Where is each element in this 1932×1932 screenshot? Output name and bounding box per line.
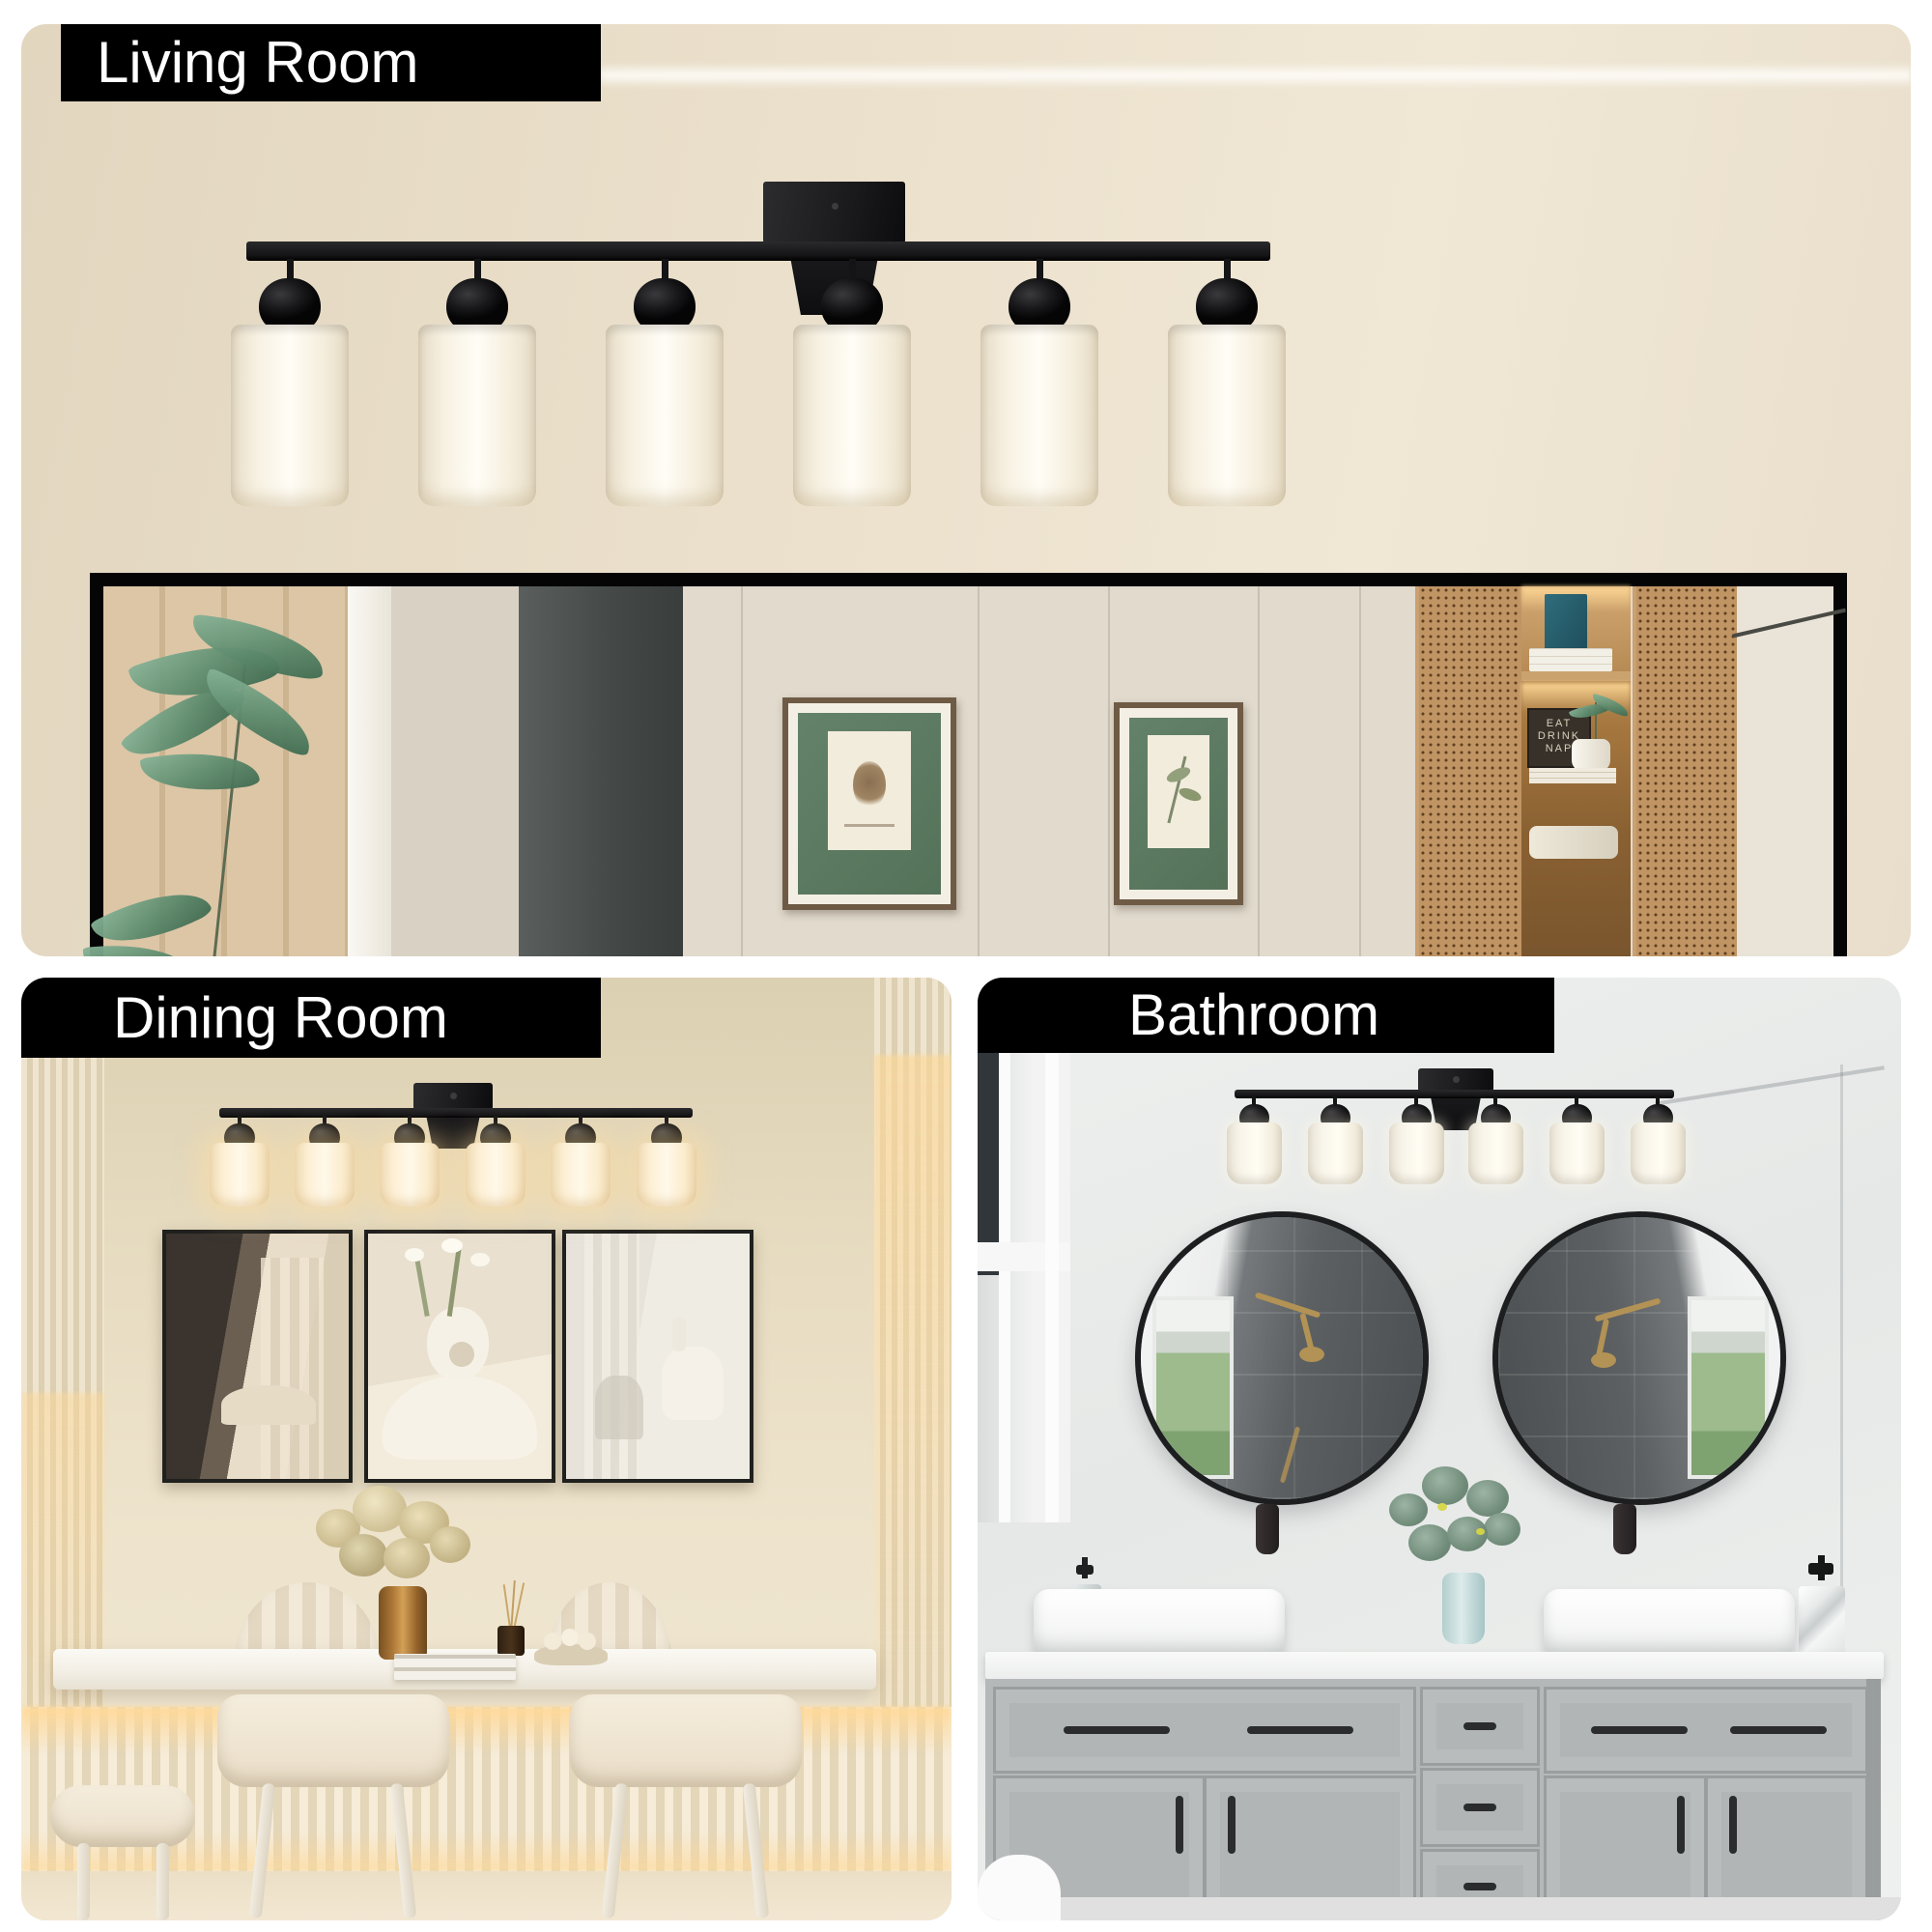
bathroom-photo: Bathroom (978, 978, 1901, 1920)
wall-faucet-left (1256, 1504, 1279, 1554)
white-vase (1572, 739, 1610, 772)
ceiling-line (1655, 1065, 1885, 1105)
lighted-shelf-niche: EAT DRINK NAP (1521, 586, 1631, 956)
vanity-countertop (985, 1652, 1884, 1679)
round-mirror-right (1492, 1211, 1786, 1505)
hall-wall (391, 586, 519, 956)
palm-plant (103, 606, 355, 956)
soap-dispenser-right (1795, 1555, 1849, 1662)
dried-flower-bouquet (306, 1480, 480, 1596)
lamp-stem (1224, 259, 1231, 280)
toilet-edge (978, 1855, 1061, 1920)
glass-shade (551, 1143, 611, 1207)
book-stack (394, 1654, 516, 1680)
fixture-bar (1235, 1090, 1674, 1098)
bathroom-floor (978, 1897, 1901, 1920)
lower-books (1529, 768, 1616, 783)
glass-shade (380, 1143, 440, 1207)
framed-print-botanical (1114, 702, 1243, 905)
dining-chair-front-left (188, 1694, 478, 1920)
glass-shade (1308, 1122, 1363, 1184)
cabinet-side-panel (1866, 1679, 1881, 1920)
glass-shade (1631, 1122, 1686, 1184)
glass-shade (606, 325, 724, 506)
vessel-sink-left (1034, 1589, 1285, 1657)
lamp-stem (662, 259, 668, 280)
mounting-plate (763, 182, 905, 243)
lamp-stem (849, 259, 856, 280)
bathroom-label: Bathroom (978, 978, 1554, 1053)
wall-art-1 (162, 1230, 353, 1483)
lamp-stem (474, 259, 481, 280)
fixture-bar (219, 1108, 693, 1118)
white-book-stack (1529, 648, 1612, 671)
glass-shade (1168, 325, 1286, 506)
living-room-inset-photo: EAT DRINK NAP (90, 573, 1847, 956)
glass-shade (1468, 1122, 1523, 1184)
glass-shade (1227, 1122, 1282, 1184)
dining-room-label-text: Dining Room (113, 985, 448, 1050)
glass-shade (210, 1143, 270, 1207)
vanity-cabinet (985, 1679, 1881, 1920)
scalloped-dish (534, 1644, 608, 1665)
teal-book (1545, 594, 1587, 650)
glass-vase (1442, 1573, 1485, 1644)
dining-room-photo: Dining Room (21, 978, 952, 1920)
vessel-sink-right (1544, 1589, 1795, 1657)
glass-shade (466, 1143, 526, 1207)
lamp-stem (287, 259, 294, 280)
living-room-photo: EAT DRINK NAP (21, 24, 1911, 956)
cabinet-drawer (1544, 1687, 1868, 1774)
shower-door-frame (978, 1053, 1070, 1522)
glass-shade (295, 1143, 355, 1207)
framed-print-teapot (782, 697, 956, 910)
wall-art-3 (562, 1230, 753, 1483)
reed-diffuser (493, 1584, 531, 1656)
glass-shade (1549, 1122, 1605, 1184)
glass-shade (793, 325, 911, 506)
glass-shade (418, 325, 536, 506)
cane-cabinet: EAT DRINK NAP (1415, 586, 1737, 956)
cabinet-small-drawer (1420, 1768, 1540, 1847)
glass-shade (980, 325, 1098, 506)
glass-shade (637, 1143, 696, 1207)
right-wall (1737, 586, 1833, 956)
amber-glass-vase (379, 1586, 427, 1660)
lamp-stem (1037, 259, 1043, 280)
cabinet-small-drawer (1420, 1687, 1540, 1766)
bathroom-label-text: Bathroom (1128, 982, 1379, 1047)
dining-chair-front-right (541, 1694, 831, 1920)
living-room-label-text: Living Room (97, 30, 419, 95)
ceiling-cove-light (601, 63, 1911, 88)
product-lifestyle-collage: EAT DRINK NAP (0, 0, 1932, 1932)
cane-door-left (1415, 586, 1527, 956)
dining-room-label: Dining Room (21, 978, 601, 1058)
cabinet-drawer (993, 1687, 1416, 1774)
dark-pillar (519, 586, 683, 956)
screw (450, 1093, 457, 1099)
shelf-board (1521, 671, 1631, 681)
glass-shade (231, 325, 349, 506)
living-room-label: Living Room (61, 24, 601, 101)
stool (50, 1785, 205, 1920)
wall-faucet-right (1613, 1504, 1636, 1554)
cane-door-right (1633, 586, 1745, 956)
screw (832, 203, 838, 210)
lower-shelf-pots (1529, 826, 1618, 859)
glass-shade (1389, 1122, 1444, 1184)
white-trim-column (348, 586, 391, 956)
wall-art-2 (364, 1230, 555, 1483)
fixture-bar (246, 241, 1270, 261)
